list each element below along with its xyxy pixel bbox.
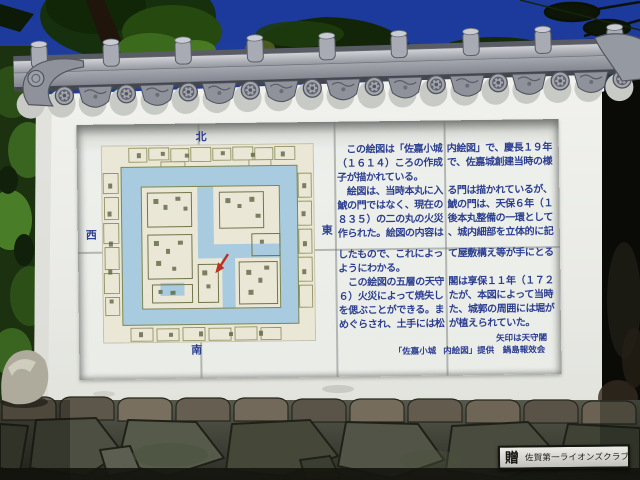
plaque-prefix: 贈 (505, 447, 519, 467)
dark-background-right (598, 78, 640, 416)
text-line: したもので、これによって屋敷構え等が手にとる (338, 246, 552, 263)
credit-line: 「佐嘉小城内絵図」提供 鍋島報效会 (339, 344, 553, 360)
info-panel: 北 西 東 南 この絵図は「佐嘉小城内絵図」で、慶長１９年 （１６１４）ころの作… (76, 119, 561, 380)
text-line: めぐらされ、土手には松が植えられていた。 (339, 316, 553, 333)
text-line: 作られた。絵図の内容は、城内細部を立体的に記 (338, 225, 552, 242)
photo-of-signboard: 北 西 東 南 この絵図は「佐嘉小城内絵図」で、慶長１９年 （１６１４）ころの作… (0, 0, 640, 480)
compass-east-label: 東 (322, 225, 333, 236)
compass-south-label: 南 (191, 344, 202, 355)
text-line: （１６１４）ころの作成で、佐嘉城創建当時の様 (337, 155, 551, 172)
plaque-donor-name: 佐賀第一ライオンズクラブ (525, 450, 629, 463)
compass-north-label: 北 (196, 131, 207, 142)
compass-west-label: 西 (86, 230, 97, 241)
donor-plaque: 贈 佐賀第一ライオンズクラブ (498, 444, 630, 469)
castle-map (101, 143, 316, 344)
panel-text: この絵図は「佐嘉小城内絵図」で、慶長１９年 （１６１４）ころの作成で、佐嘉城創建… (337, 141, 554, 360)
